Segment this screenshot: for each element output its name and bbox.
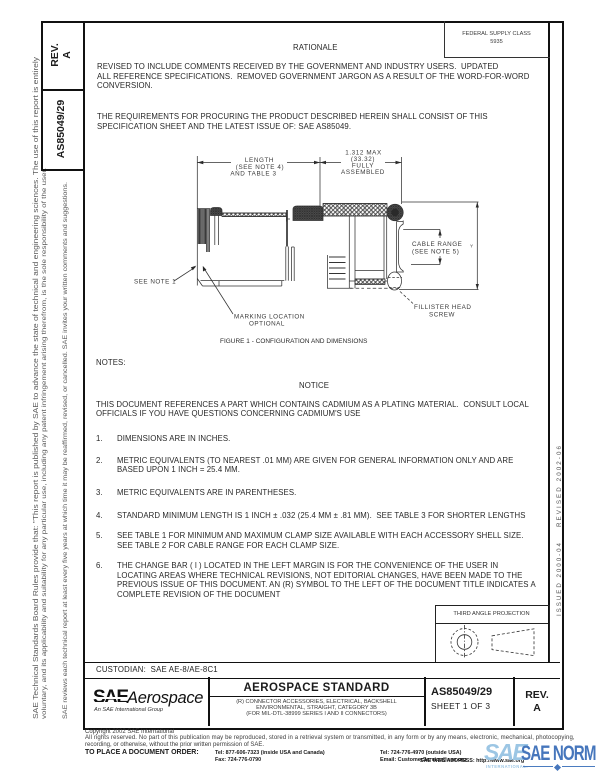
svg-text:LENGTH: LENGTH <box>245 157 274 164</box>
svg-text:SEE NOTE 1: SEE NOTE 1 <box>134 279 176 286</box>
svg-text:SAE Technical Standards Board: SAE Technical Standards Board Rules prov… <box>33 56 40 719</box>
svg-text:SAE reviews each technical rep: SAE reviews each technical report at lea… <box>62 182 69 719</box>
svg-text:SCREW: SCREW <box>429 312 455 319</box>
svg-text:CABLE RANGE: CABLE RANGE <box>412 241 462 248</box>
svg-text:AND TABLE 3: AND TABLE 3 <box>230 171 276 178</box>
svg-text:OPTIONAL: OPTIONAL <box>249 321 285 328</box>
svg-text:FILLISTER HEAD: FILLISTER HEAD <box>414 304 471 311</box>
svg-text:(SEE NOTE 5): (SEE NOTE 5) <box>412 249 459 256</box>
svg-text:voluntary, and its applicabili: voluntary, and its applicability and sui… <box>41 164 48 719</box>
svg-text:ASSEMBLED: ASSEMBLED <box>341 169 385 176</box>
svg-text:Y: Y <box>470 244 473 249</box>
svg-text:MARKING LOCATION: MARKING LOCATION <box>234 314 305 321</box>
